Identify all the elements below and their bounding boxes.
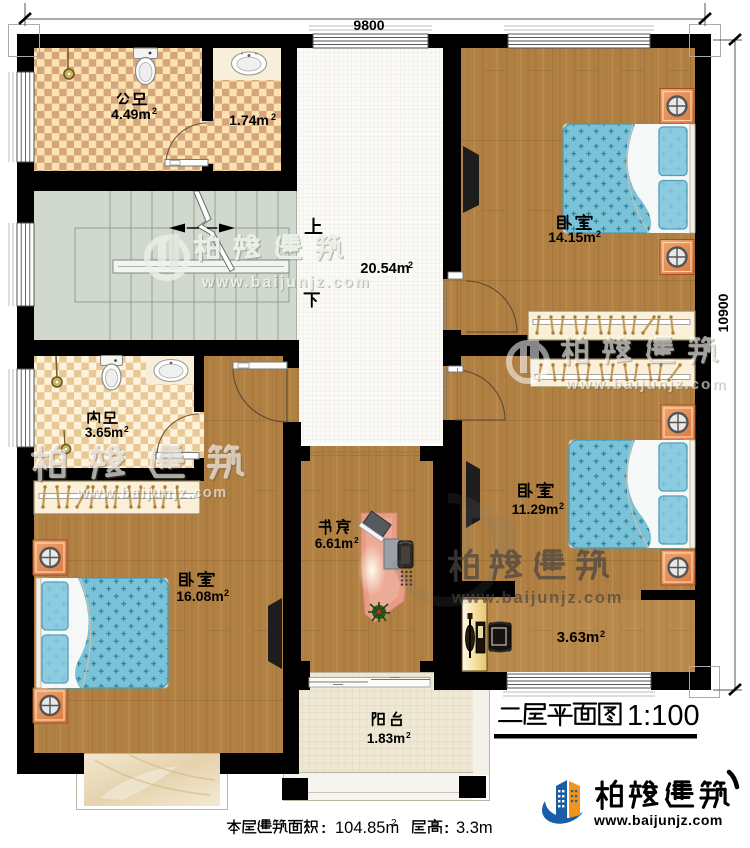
svg-text:2: 2 (406, 730, 411, 740)
svg-text:2: 2 (559, 501, 564, 511)
svg-text:4.49m: 4.49m (111, 106, 151, 122)
svg-text:16.08m: 16.08m (176, 588, 223, 604)
svg-text:2: 2 (391, 818, 397, 829)
svg-text:11.29m: 11.29m (512, 501, 559, 517)
svg-text:2: 2 (408, 260, 413, 270)
svg-text:1.74m: 1.74m (229, 112, 269, 128)
svg-text:1.83m: 1.83m (367, 731, 405, 746)
svg-text:2: 2 (600, 629, 605, 639)
svg-text:www.baijunjz.com: www.baijunjz.com (565, 376, 727, 393)
svg-text:1:100: 1:100 (627, 700, 700, 732)
svg-text:3.65m: 3.65m (85, 425, 123, 440)
svg-text::: : (321, 820, 326, 837)
svg-text:14.15m: 14.15m (548, 229, 595, 245)
svg-text:6.61m: 6.61m (315, 536, 353, 551)
svg-text:2: 2 (152, 106, 157, 116)
svg-text:2: 2 (224, 588, 229, 598)
svg-text:3.3m: 3.3m (456, 819, 493, 837)
svg-text:20.54m: 20.54m (360, 261, 409, 277)
svg-text:2: 2 (596, 229, 601, 239)
svg-text:10900: 10900 (715, 293, 731, 332)
svg-text::: : (444, 820, 449, 837)
svg-text:3.63m: 3.63m (557, 629, 600, 646)
svg-text:2: 2 (271, 112, 276, 122)
svg-text:2: 2 (124, 424, 129, 434)
svg-text:2: 2 (354, 535, 359, 545)
svg-text:9800: 9800 (353, 17, 384, 33)
svg-text:www.baijunjz.com: www.baijunjz.com (201, 274, 371, 291)
svg-text:www.baijunjz.com: www.baijunjz.com (76, 485, 228, 501)
svg-text:www.baijunjz.com: www.baijunjz.com (451, 589, 623, 607)
svg-text:104.85m: 104.85m (335, 819, 399, 837)
svg-text:www.baijunjz.com: www.baijunjz.com (593, 812, 723, 828)
